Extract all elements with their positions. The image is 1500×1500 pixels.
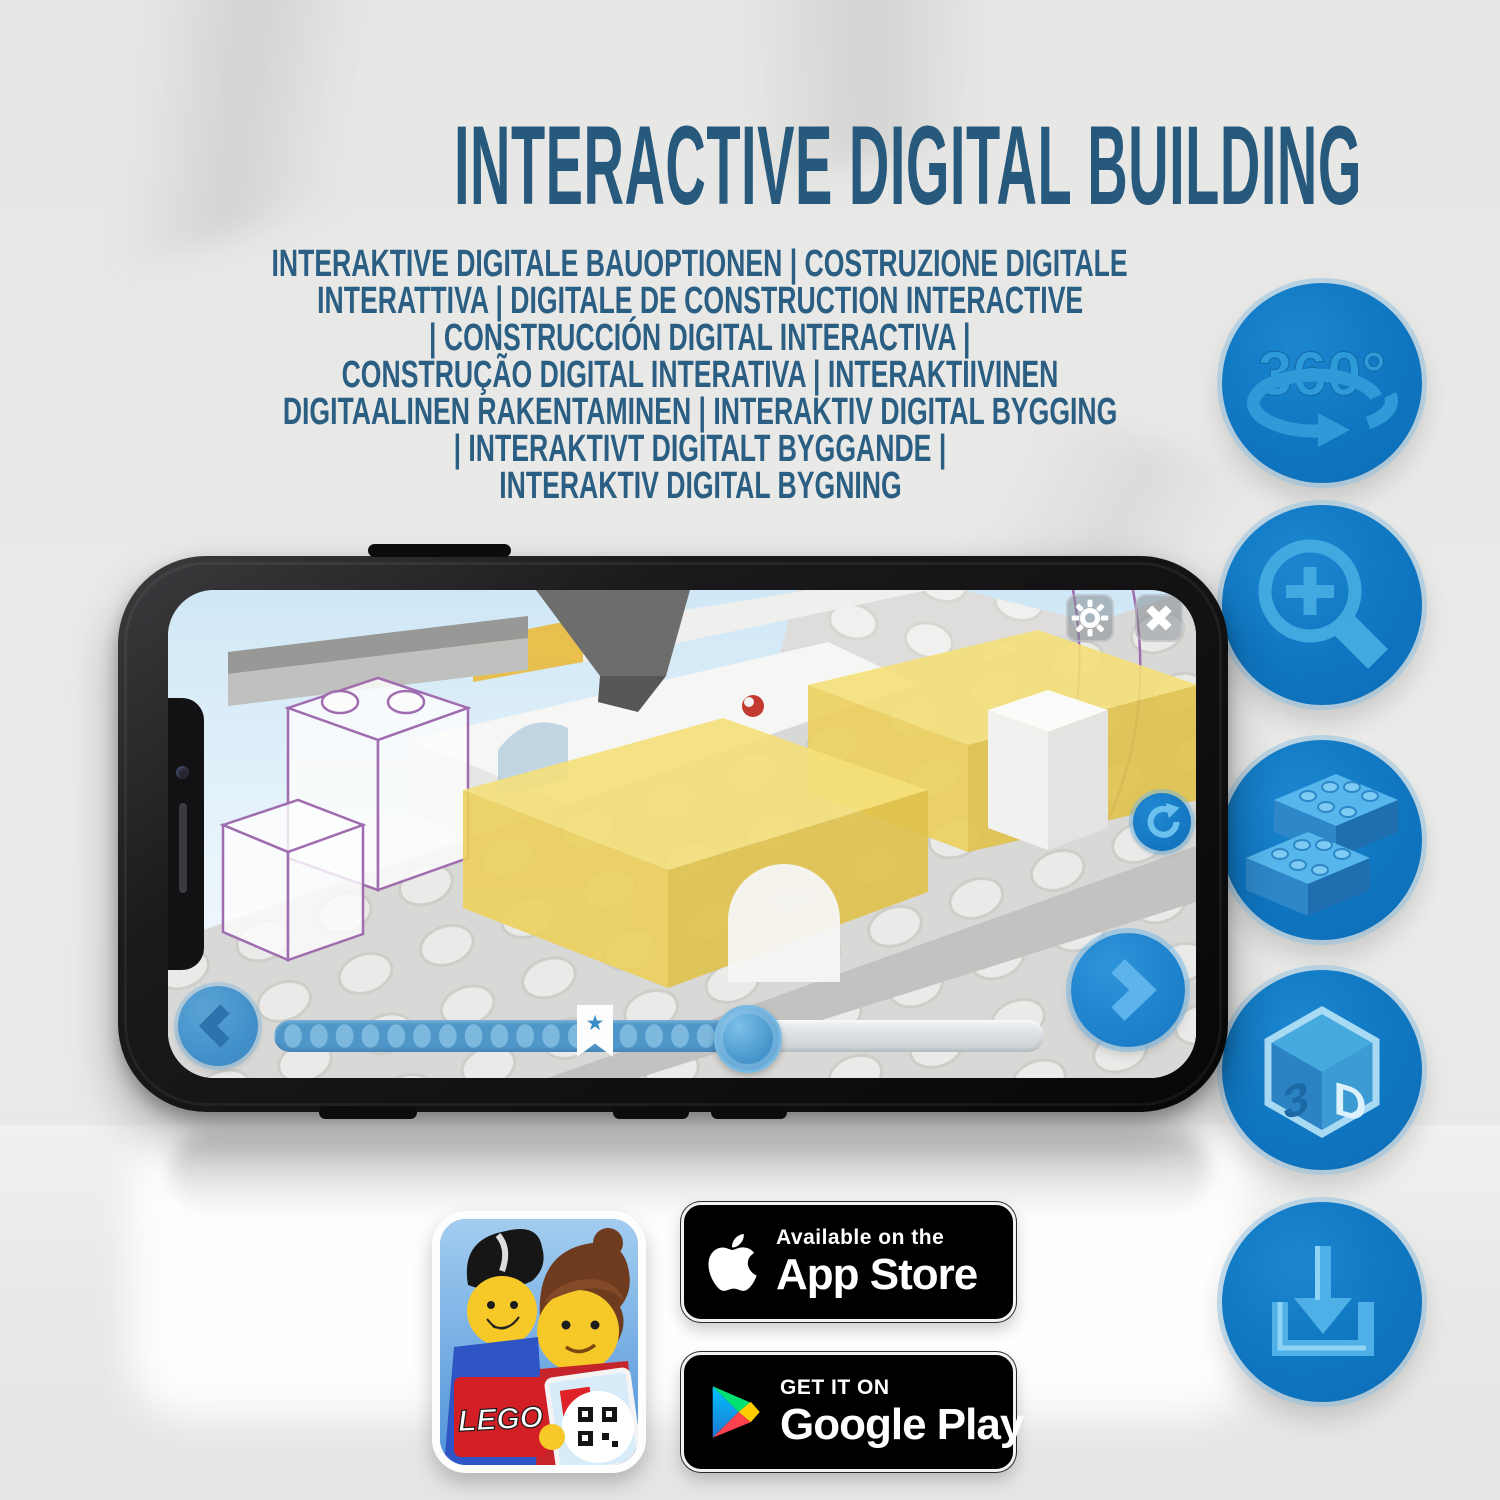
chevron-right-icon xyxy=(1071,933,1185,1047)
lego-app-icon[interactable]: LEGO xyxy=(432,1211,646,1473)
google-play-badge[interactable]: GET IT ON Google Play xyxy=(681,1352,1016,1472)
360-rotation-icon: 360° xyxy=(1222,283,1422,483)
3d-cube-icon: 3 D xyxy=(1222,970,1422,1170)
feature-3d-view: 3 D xyxy=(1222,970,1422,1170)
app-store-label: App Store xyxy=(776,1251,977,1299)
feature-brick-steps xyxy=(1222,740,1422,940)
poster: INTERACTIVE DIGITAL BUILDING INTERAKTIVE… xyxy=(0,0,1500,1500)
subtitle-line: INTERATTIVA | DIGITALE DE CONSTRUCTION I… xyxy=(60,283,1340,320)
subtitle-line: | INTERAKTIVT DIGITALT BYGGANDE | xyxy=(60,431,1340,468)
smartphone: ★ xyxy=(118,556,1228,1112)
bookmark-marker[interactable]: ★ xyxy=(577,1005,613,1057)
build-progress-bar[interactable]: ★ xyxy=(274,1020,1044,1052)
rotate-view-button[interactable] xyxy=(1133,793,1191,851)
settings-button[interactable] xyxy=(1066,594,1114,642)
google-play-tagline: GET IT ON xyxy=(780,1375,1023,1401)
progress-remaining-track xyxy=(766,1020,1044,1052)
power-button xyxy=(368,544,511,557)
lego-app-icon-art: LEGO xyxy=(440,1219,640,1467)
subtitle-line: INTERAKTIVE DIGITALE BAUOPTIONEN | COSTR… xyxy=(60,246,1340,283)
download-icon xyxy=(1222,1202,1422,1402)
close-icon xyxy=(1141,600,1177,636)
multilanguage-subtitle: INTERAKTIVE DIGITALE BAUOPTIONEN | COSTR… xyxy=(60,246,1340,505)
subtitle-line: DIGITAALINEN RAKENTAMINEN | INTERAKTIV D… xyxy=(60,394,1340,431)
front-camera xyxy=(176,766,189,779)
previous-step-button[interactable] xyxy=(178,986,258,1066)
rotate-icon xyxy=(1140,800,1184,844)
next-step-button[interactable] xyxy=(1071,933,1185,1047)
gear-icon xyxy=(1070,598,1110,638)
app-screen: ★ xyxy=(168,590,1196,1078)
page-title: INTERACTIVE DIGITAL BUILDING xyxy=(0,118,1500,214)
lego-3d-scene xyxy=(168,590,1196,1078)
phone-reflection xyxy=(170,1132,1210,1210)
apple-icon xyxy=(706,1230,758,1294)
volume-down-button xyxy=(711,1106,787,1119)
subtitle-line: CONSTRUÇÃO DIGITAL INTERATIVA | INTERAKT… xyxy=(60,357,1340,394)
cube-letter-d: D xyxy=(1333,1072,1366,1132)
progress-filled-track xyxy=(274,1020,766,1052)
star-icon: ★ xyxy=(586,1005,605,1057)
feature-360-rotation: 360° xyxy=(1222,283,1422,483)
brick-steps-icon xyxy=(1222,740,1422,940)
app-store-tagline: Available on the xyxy=(776,1225,977,1251)
google-play-label: Google Play xyxy=(780,1401,1023,1449)
subtitle-line: INTERAKTIV DIGITAL BYGNING xyxy=(60,468,1340,505)
volume-up-button xyxy=(613,1106,689,1119)
feature-zoom xyxy=(1222,505,1422,705)
lego-logo-text: LEGO xyxy=(457,1401,544,1438)
close-button[interactable] xyxy=(1135,594,1183,642)
side-button xyxy=(319,1106,417,1119)
feature-download xyxy=(1222,1202,1422,1402)
subtitle-line: | CONSTRUCCIÓN DIGITAL INTERACTIVA | xyxy=(60,320,1340,357)
progress-knob[interactable] xyxy=(714,1005,782,1073)
phone-notch xyxy=(168,698,204,970)
zoom-in-icon xyxy=(1222,505,1422,705)
earpiece-speaker xyxy=(179,803,187,893)
chevron-left-icon xyxy=(178,986,258,1066)
google-play-icon xyxy=(706,1381,762,1443)
cube-letter-3: 3 xyxy=(1283,1071,1309,1129)
app-store-badge[interactable]: Available on the App Store xyxy=(681,1202,1016,1322)
